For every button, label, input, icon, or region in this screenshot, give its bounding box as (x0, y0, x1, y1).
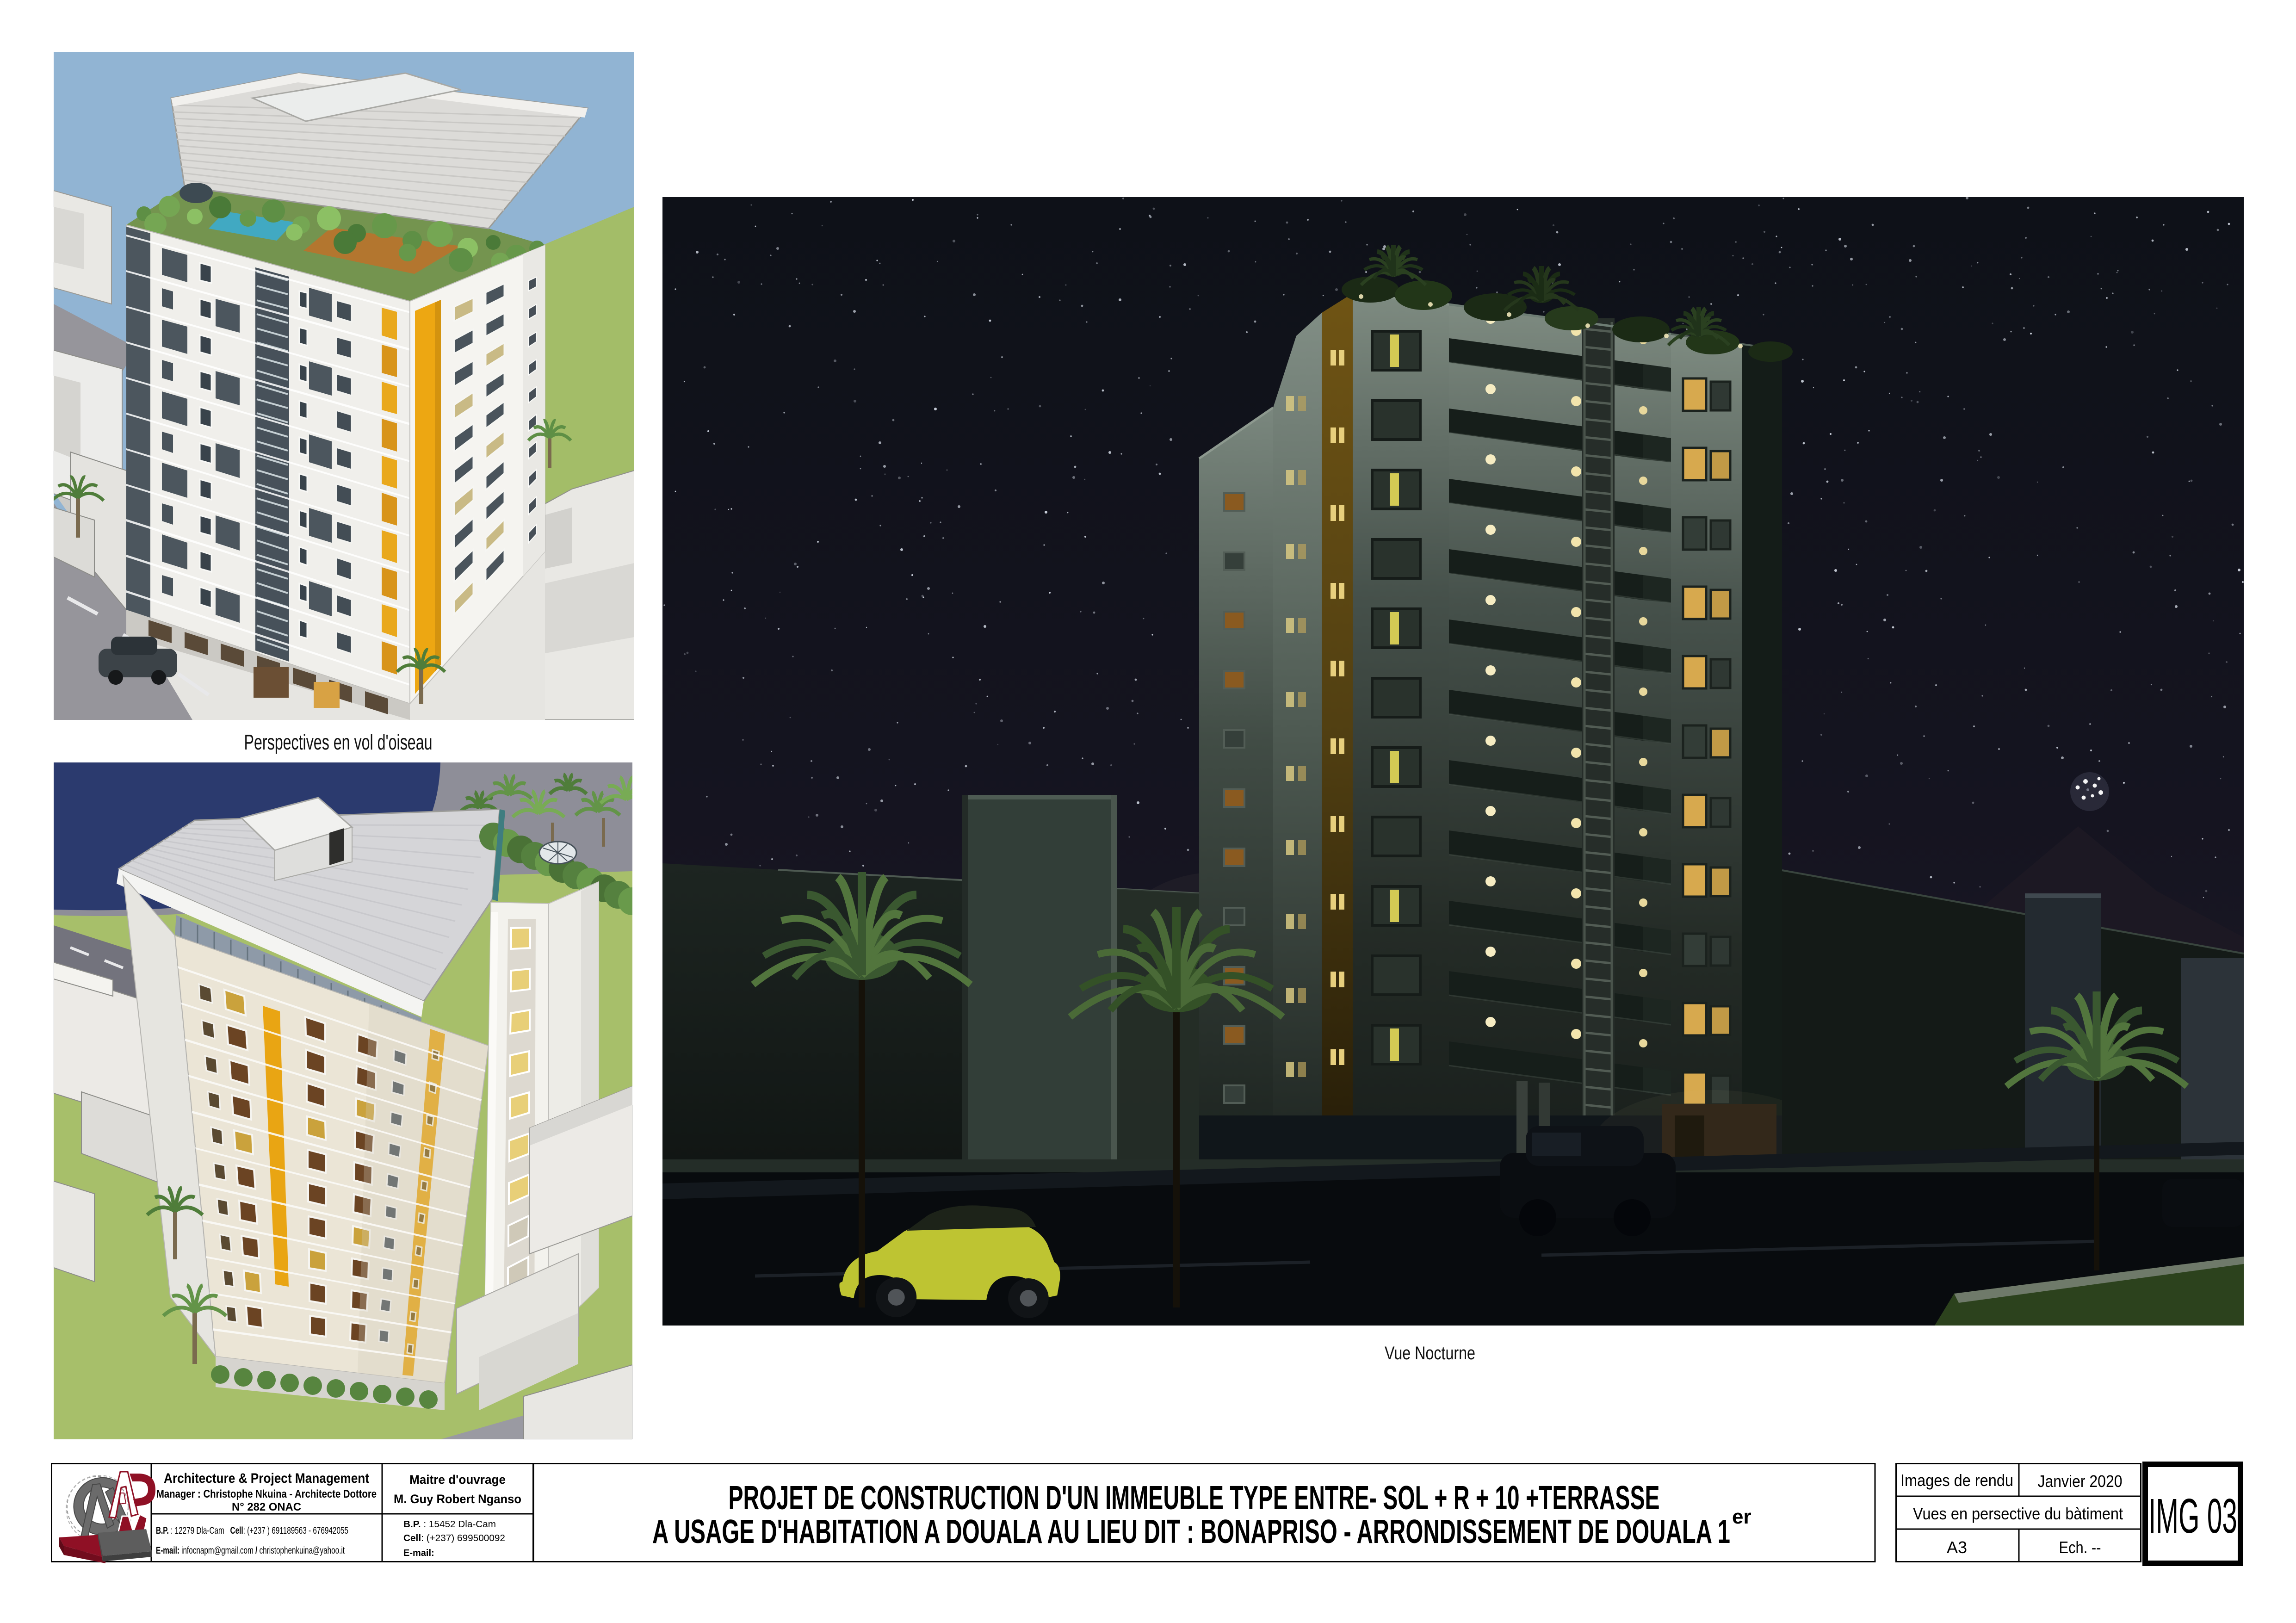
svg-text:Maitre d'ouvrage: Maitre d'ouvrage (409, 1473, 506, 1487)
svg-text:Vue Nocturne: Vue Nocturne (1385, 1343, 1475, 1363)
svg-text:B.P. : 15452 Dla-Cam: B.P. : 15452 Dla-Cam (403, 1519, 496, 1530)
svg-text:PROJET DE CONSTRUCTION D'UN IM: PROJET DE CONSTRUCTION D'UN IMMEUBLE TYP… (729, 1480, 1660, 1517)
svg-text:B.P. : 12279 Dla-Cam Cell: (: B.P. : 12279 Dla-Cam Cell: (+237 ) 69118… (156, 1525, 348, 1536)
svg-text:er: er (1732, 1505, 1751, 1528)
svg-text:M. Guy Robert Nganso: M. Guy Robert Nganso (394, 1492, 521, 1506)
svg-text:E-mail:: E-mail: (403, 1548, 434, 1558)
svg-text:Architecture & Project Manage: Architecture & Project Management (164, 1471, 369, 1486)
svg-text:Images de rendu: Images de rendu (1900, 1471, 2013, 1490)
svg-text:Janvier 2020: Janvier 2020 (2038, 1472, 2123, 1491)
svg-text:Manager : Christophe Nkuina -: Manager : Christophe Nkuina - Architecte… (156, 1488, 377, 1500)
svg-text:A USAGE D'HABITATION A DOUAL: A USAGE D'HABITATION A DOUALA AU LIEU DI… (652, 1513, 1730, 1550)
svg-text:E-mail: infocnapm@gmail.com /: E-mail: infocnapm@gmail.com / christophe… (156, 1545, 345, 1556)
svg-text:A3: A3 (1947, 1538, 1967, 1557)
svg-text:Vues en persective du bàtiment: Vues en persective du bàtiment (1913, 1504, 2123, 1523)
svg-text:IMG 03: IMG 03 (2148, 1489, 2237, 1543)
svg-text:Cell: (+237) 699500092: Cell: (+237) 699500092 (403, 1533, 505, 1543)
svg-text:Ech. --: Ech. -- (2059, 1538, 2101, 1557)
svg-text:N° 282 ONAC: N° 282 ONAC (232, 1501, 301, 1513)
svg-text:Perspectives en vol d'oiseau: Perspectives en vol d'oiseau (244, 730, 433, 754)
